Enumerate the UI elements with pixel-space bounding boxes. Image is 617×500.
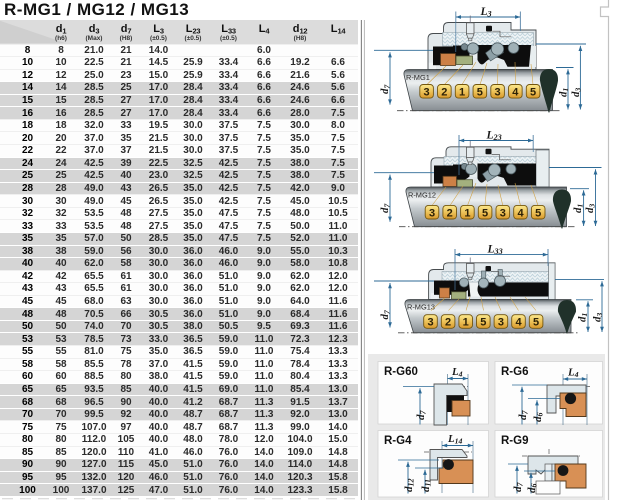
svg-text:2: 2 bbox=[445, 317, 451, 329]
svg-text:R-G4: R-G4 bbox=[384, 435, 412, 447]
svg-text:d3: d3 bbox=[584, 204, 597, 213]
svg-text:3: 3 bbox=[495, 87, 501, 99]
svg-text:5: 5 bbox=[533, 317, 539, 329]
svg-text:3: 3 bbox=[424, 87, 430, 99]
svg-text:R-G9: R-G9 bbox=[501, 435, 528, 447]
svg-text:5: 5 bbox=[480, 317, 486, 329]
svg-text:R-G60: R-G60 bbox=[384, 366, 418, 378]
svg-text:4: 4 bbox=[515, 317, 522, 329]
svg-text:R-G6: R-G6 bbox=[501, 366, 528, 378]
svg-text:d7: d7 bbox=[379, 84, 392, 94]
svg-text:d1: d1 bbox=[572, 204, 585, 213]
svg-text:1: 1 bbox=[464, 207, 470, 219]
svg-text:3: 3 bbox=[500, 207, 506, 219]
svg-text:5: 5 bbox=[535, 207, 541, 219]
svg-text:3: 3 bbox=[498, 317, 504, 329]
svg-text:R-MG1: R-MG1 bbox=[406, 73, 430, 82]
svg-text:d7: d7 bbox=[379, 203, 392, 213]
svg-text:1: 1 bbox=[459, 87, 465, 99]
svg-text:4: 4 bbox=[512, 87, 519, 99]
svg-text:4: 4 bbox=[517, 207, 524, 219]
svg-text:5: 5 bbox=[477, 87, 483, 99]
svg-text:d7: d7 bbox=[379, 309, 392, 319]
svg-text:5: 5 bbox=[530, 87, 536, 99]
svg-text:2: 2 bbox=[441, 87, 447, 99]
svg-text:3: 3 bbox=[427, 317, 433, 329]
svg-text:d1: d1 bbox=[558, 88, 571, 97]
svg-text:3: 3 bbox=[429, 207, 435, 219]
svg-text:L33: L33 bbox=[487, 244, 503, 257]
svg-text:R-MG13: R-MG13 bbox=[407, 303, 435, 312]
svg-text:2: 2 bbox=[447, 207, 453, 219]
svg-text:d3: d3 bbox=[592, 313, 605, 322]
svg-text:1: 1 bbox=[463, 317, 469, 329]
svg-text:R-MG12: R-MG12 bbox=[408, 191, 436, 200]
svg-text:d1: d1 bbox=[577, 313, 590, 322]
svg-text:5: 5 bbox=[482, 207, 488, 219]
svg-text:L3: L3 bbox=[480, 6, 492, 19]
svg-text:L23: L23 bbox=[486, 130, 502, 143]
svg-text:d3: d3 bbox=[570, 88, 583, 97]
